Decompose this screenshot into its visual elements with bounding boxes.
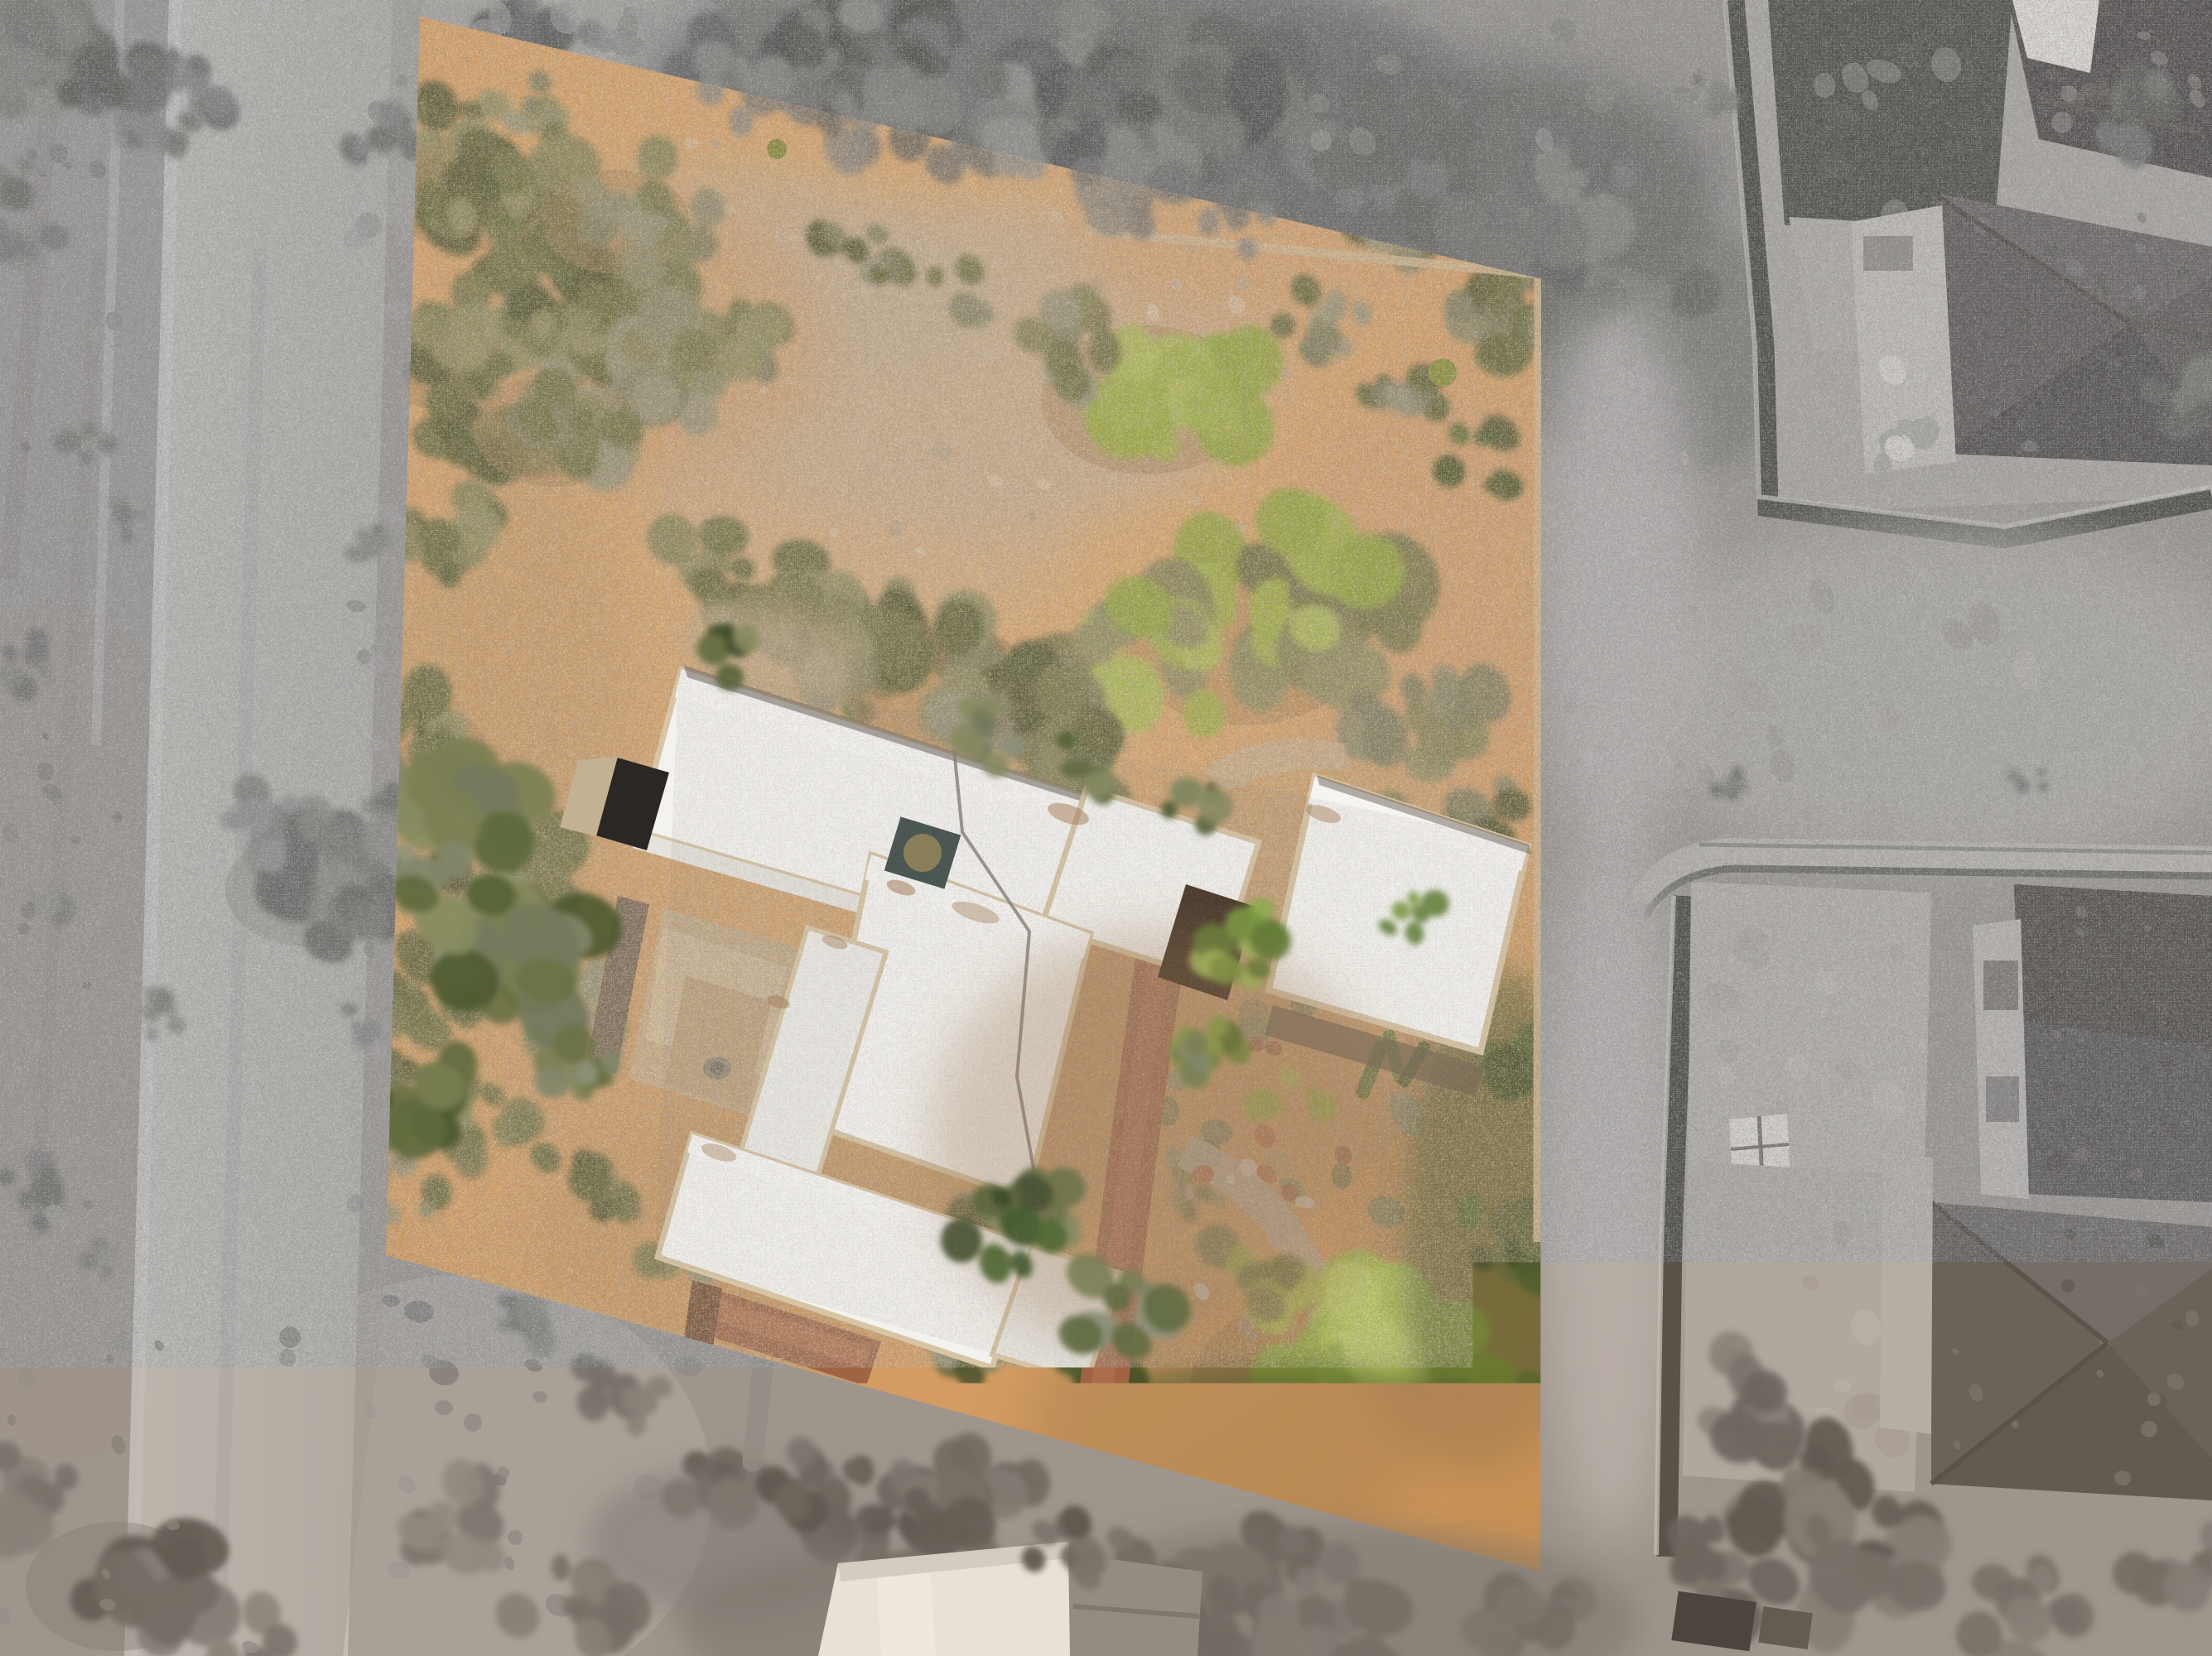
svg-text:©2025 MLSSAZ: ©2025 MLSSAZ [2,1558,354,1615]
